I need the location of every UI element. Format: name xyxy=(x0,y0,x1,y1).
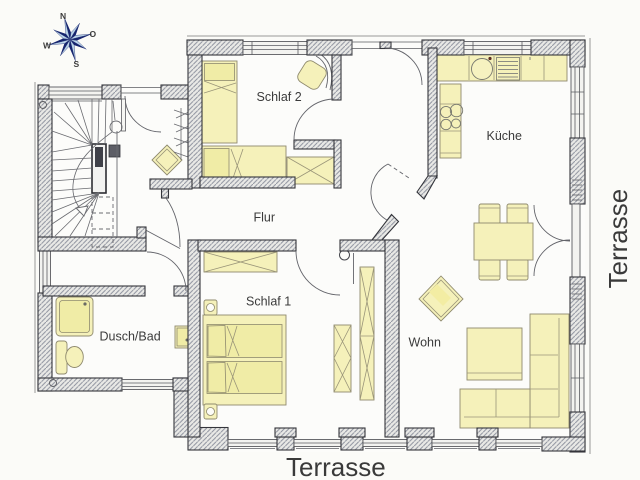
svg-text:Terrasse: Terrasse xyxy=(286,452,386,480)
svg-text:Wohn: Wohn xyxy=(409,335,441,349)
svg-text:Terrasse: Terrasse xyxy=(603,189,633,289)
svg-text:W: W xyxy=(43,40,52,50)
svg-text:S: S xyxy=(74,59,80,69)
svg-text:Küche: Küche xyxy=(487,129,522,143)
svg-text:N: N xyxy=(60,11,66,21)
svg-text:Flur: Flur xyxy=(254,210,276,224)
svg-text:Dusch/Bad: Dusch/Bad xyxy=(100,330,161,344)
svg-text:Schlaf 2: Schlaf 2 xyxy=(257,90,302,104)
svg-text:Schlaf 1: Schlaf 1 xyxy=(246,294,291,308)
svg-text:O: O xyxy=(90,29,97,39)
